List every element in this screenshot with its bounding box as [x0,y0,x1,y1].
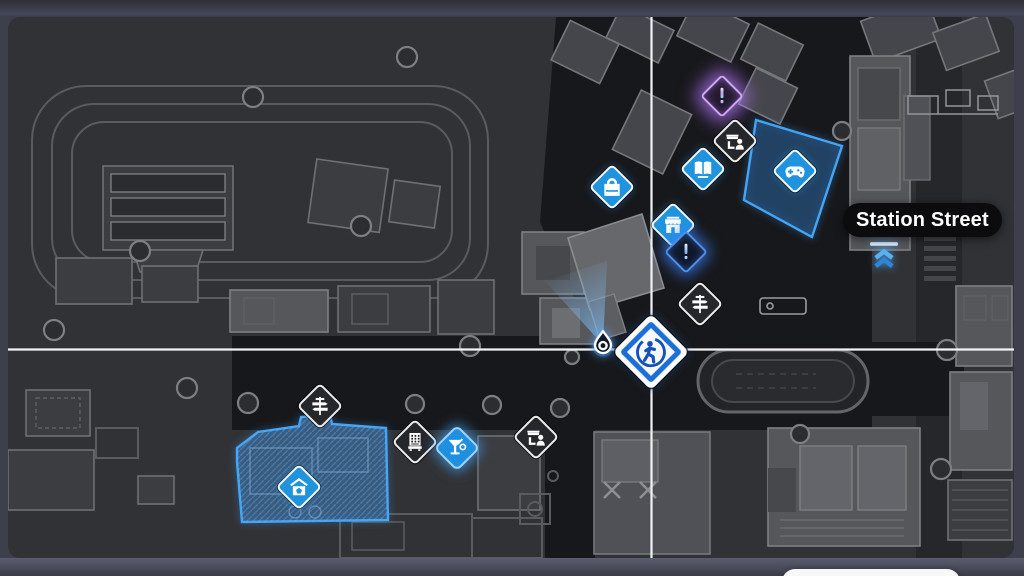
gamepad-icon [784,160,807,183]
metro-icon [869,241,899,269]
street-name-label: Station Street [843,203,1002,237]
runner-icon [633,334,669,370]
book-icon [692,158,715,181]
vending-icon [404,431,427,454]
game-map-screen: Station Street [0,0,1024,576]
top-frame-bar [0,0,1024,17]
pin-icon [586,327,620,361]
shop-npc-icon [525,426,548,449]
cocktail-icon [446,437,469,460]
bag-icon [601,176,624,199]
signpost-icon [309,395,332,418]
exclam-b-icon [675,241,698,264]
signpost-icon [689,293,712,316]
marker-layer [0,0,1024,576]
bottom-sheet-button[interactable] [782,569,960,576]
exclam-p-icon [711,85,734,108]
home-icon [288,476,311,499]
shop-npc-icon [724,130,747,153]
